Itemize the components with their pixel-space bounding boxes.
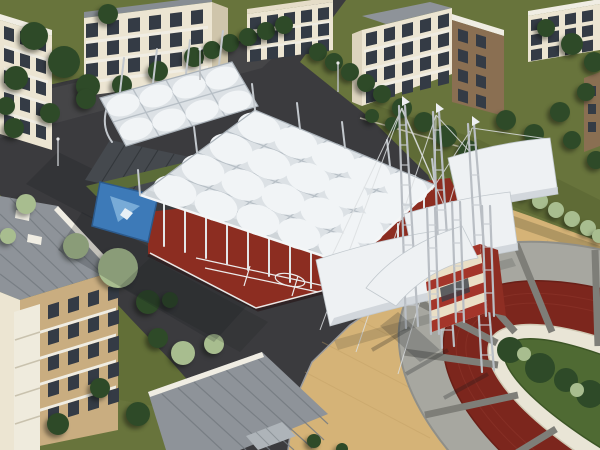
architectural-rendering: [0, 0, 600, 450]
tree: [550, 102, 570, 122]
tree: [561, 33, 583, 55]
tree: [148, 328, 168, 348]
tree: [171, 341, 195, 365]
tree: [76, 89, 96, 109]
tree: [537, 19, 555, 37]
tree: [221, 34, 239, 52]
shrub: [564, 211, 580, 227]
tree: [275, 16, 293, 34]
tree: [98, 4, 118, 24]
tree: [325, 53, 343, 71]
tree: [148, 61, 168, 81]
tree: [0, 228, 16, 244]
tree: [257, 22, 275, 40]
rendering-viewport: [0, 0, 600, 450]
tree: [341, 63, 359, 81]
balcony-stack: [14, 304, 40, 450]
tree: [496, 110, 516, 130]
tree: [307, 434, 321, 448]
tree: [40, 103, 60, 123]
tree: [357, 74, 375, 92]
median-bush: [517, 347, 531, 361]
tree: [203, 41, 221, 59]
tree: [365, 109, 379, 123]
tree: [239, 28, 257, 46]
tree: [16, 194, 36, 214]
tree: [563, 131, 581, 149]
tree: [48, 46, 80, 78]
tree: [577, 83, 595, 101]
tree: [4, 118, 24, 138]
tree: [126, 402, 150, 426]
median-bush: [570, 383, 584, 397]
tree: [47, 413, 69, 435]
tree: [373, 85, 391, 103]
tree: [20, 22, 48, 50]
shrub: [548, 202, 564, 218]
tree: [309, 43, 327, 61]
tree: [90, 378, 110, 398]
tree: [4, 66, 28, 90]
tree: [435, 125, 457, 147]
